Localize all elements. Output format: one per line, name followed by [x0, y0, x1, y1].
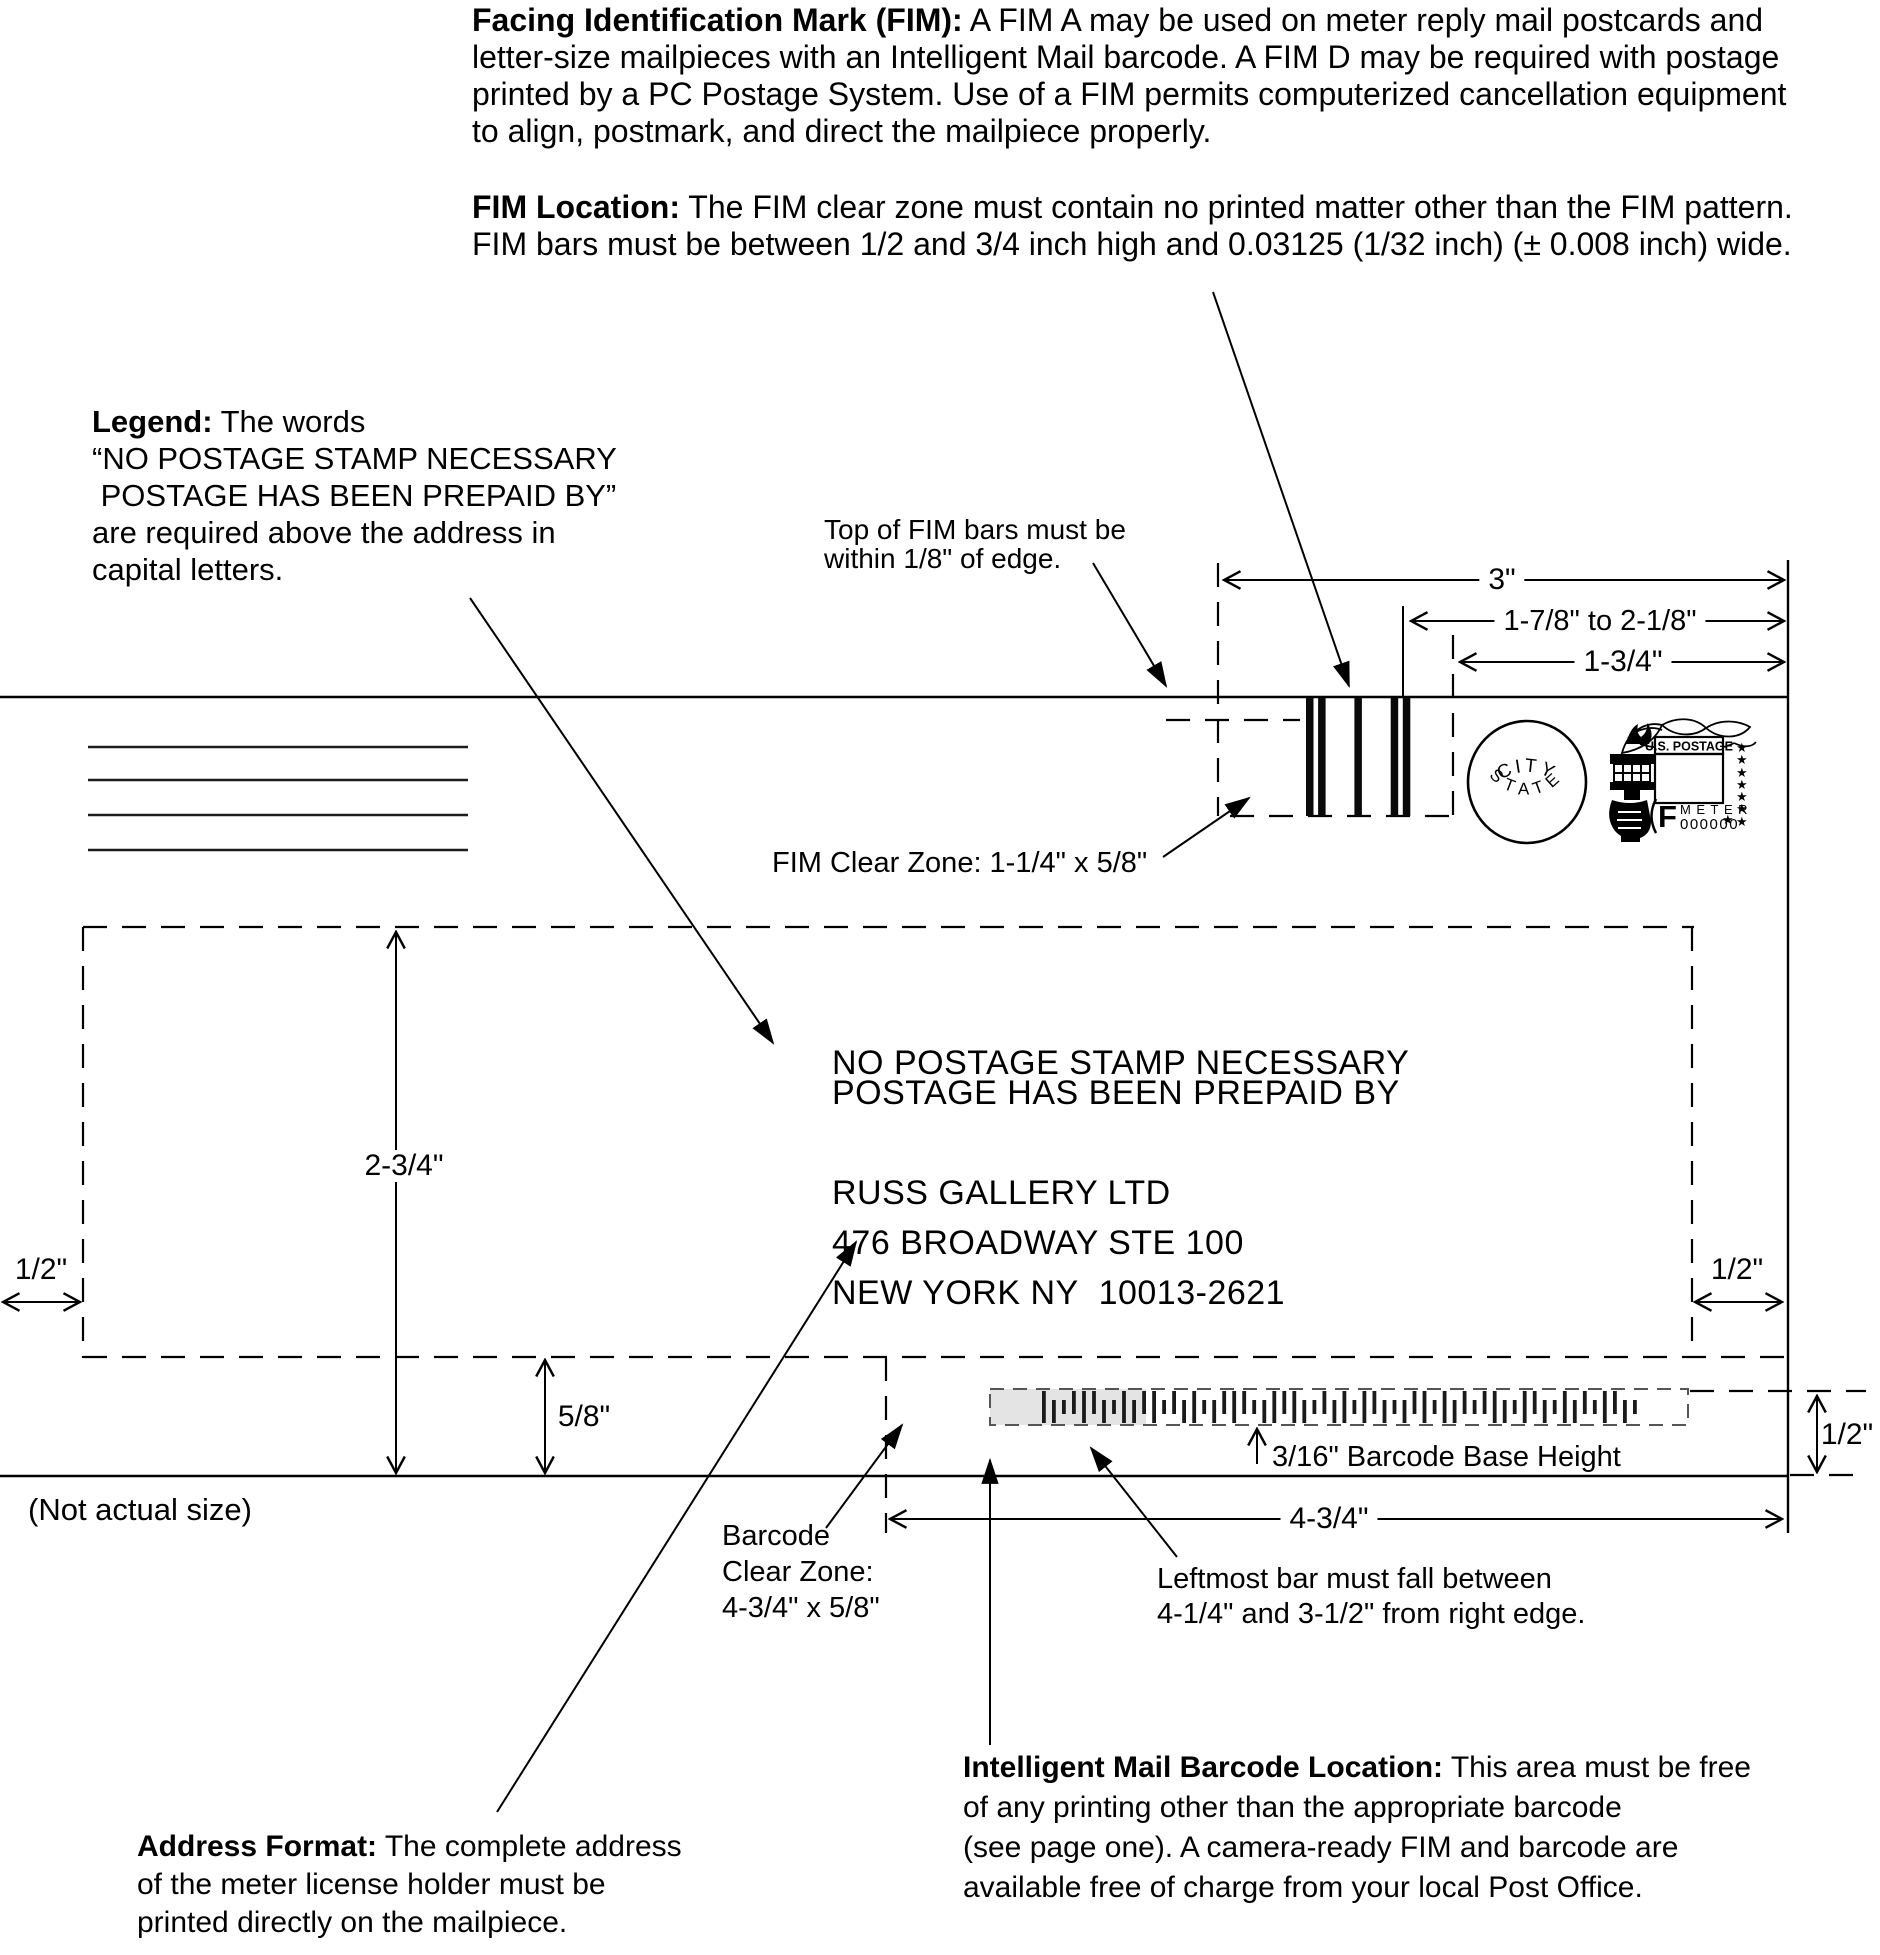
- legend-paragraph: Legend: The words “NO POSTAGE STAMP NECE…: [92, 403, 732, 588]
- fim-clear-zone-arrow: [1163, 798, 1249, 857]
- meter-stamp: U.S. POSTAGE F METER 000000: [1609, 719, 1756, 842]
- fim-bars: [1306, 698, 1410, 816]
- dimension-2-3-4: 2-3/4": [355, 1150, 452, 1182]
- dimension-4-3-4: 4-3/4": [1280, 1503, 1377, 1535]
- barcode-base-height-label: 3/16" Barcode Base Height: [1272, 1441, 1621, 1474]
- legend-arrow: [470, 598, 773, 1043]
- meter-stamp-star-extra: ★: [1722, 814, 1734, 826]
- barcode-clear-zone-label: Barcode Clear Zone: 4-3/4" x 5/8": [722, 1518, 880, 1626]
- envelope-address-text: RUSS GALLERY LTD 476 BROADWAY STE 100 NE…: [832, 1168, 1285, 1318]
- leftmost-bar-label: Leftmost bar must fall between 4-1/4" an…: [1157, 1562, 1585, 1632]
- dimension-3in: 3": [1479, 564, 1524, 596]
- postmark: CITY STATE: [1468, 721, 1586, 843]
- leftmost-bar-arrow: [1091, 1448, 1177, 1557]
- fim-top-arrow: [1093, 563, 1166, 686]
- return-address-lines: [88, 747, 468, 850]
- meter-stamp-header: U.S. POSTAGE: [1645, 740, 1733, 754]
- fim-location-paragraph: FIM Location: The FIM clear zone must co…: [472, 189, 1867, 263]
- imb-zone: [990, 1389, 1688, 1425]
- callout-top-of-fim: Top of FIM bars must be within 1/8" of e…: [824, 515, 1126, 573]
- dimension-half-barcode: 1/2": [1821, 1419, 1873, 1451]
- not-actual-size-label: (Not actual size): [28, 1492, 252, 1528]
- fim-paragraph: Facing Identification Mark (FIM): A FIM …: [472, 2, 1867, 150]
- dimension-1-3-4: 1-3/4": [1574, 646, 1671, 678]
- stage: CITY STATE: [0, 0, 1880, 1955]
- dimension-half-left: 1/2": [15, 1254, 67, 1286]
- callout-fim-clear-zone: FIM Clear Zone: 1-1/4" x 5/8": [772, 847, 1147, 880]
- address-format-paragraph: Address Format: The complete address of …: [137, 1828, 837, 1942]
- imb-location-paragraph: Intelligent Mail Barcode Location: This …: [963, 1748, 1813, 1908]
- envelope-legend-text: NO POSTAGE STAMP NECESSARY POSTAGE HAS B…: [832, 1048, 1409, 1108]
- diagram-svg: CITY STATE: [0, 0, 1880, 1955]
- dimension-5-8: 5/8": [558, 1401, 610, 1433]
- fim-location-arrow: [1213, 292, 1349, 686]
- meter-stamp-stars: ★ ★ ★ ★ ★ ★ ★: [1736, 742, 1748, 828]
- dimension-half-right: 1/2": [1711, 1254, 1763, 1286]
- meter-stamp-f: F: [1658, 799, 1677, 834]
- dimension-range: 1-7/8" to 2-1/8": [1494, 605, 1705, 637]
